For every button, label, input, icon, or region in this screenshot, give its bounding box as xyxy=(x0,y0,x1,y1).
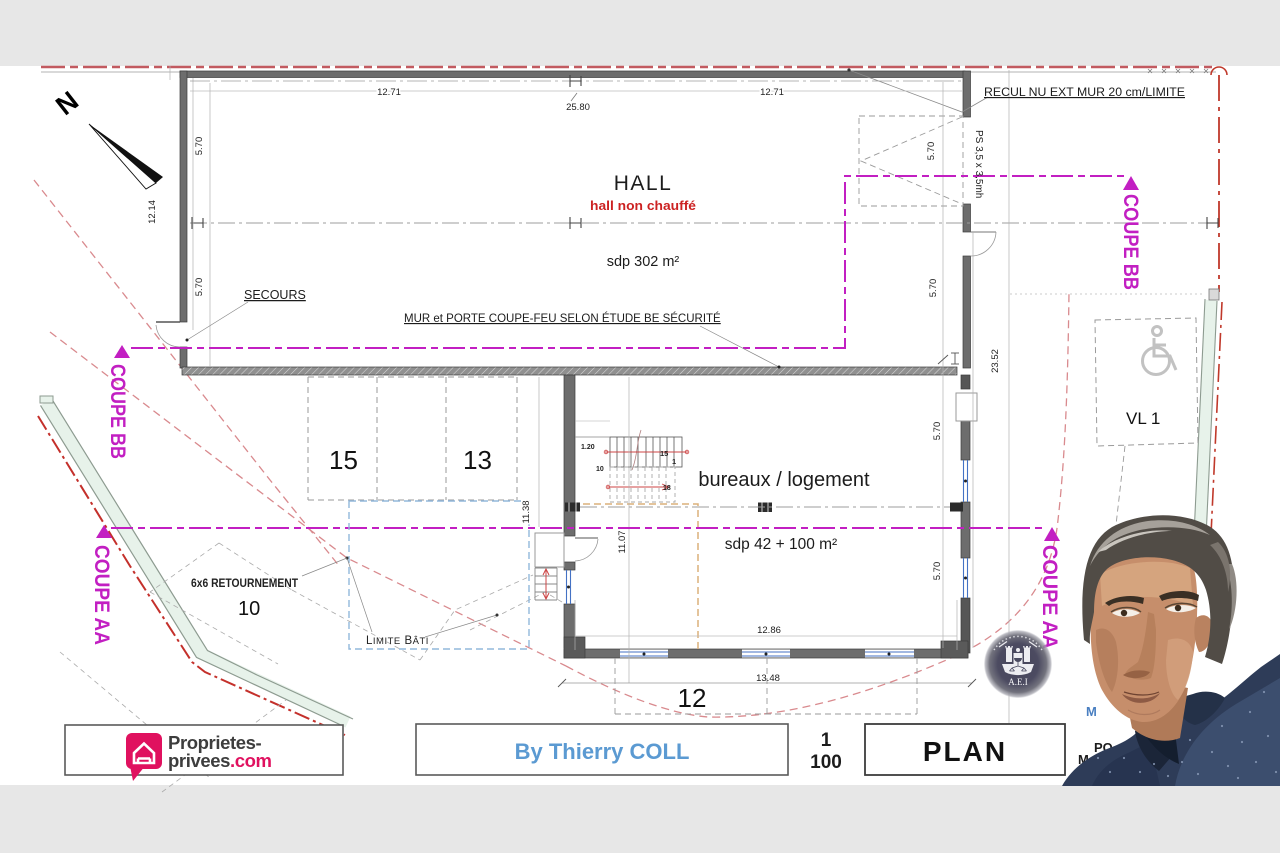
svg-text:1: 1 xyxy=(672,457,676,466)
svg-text:sdp 302 m²: sdp 302 m² xyxy=(607,254,680,270)
svg-text:5.70: 5.70 xyxy=(194,137,205,156)
svg-text:VL 1: VL 1 xyxy=(1126,409,1160,428)
svg-text:5.70: 5.70 xyxy=(928,279,939,298)
svg-text:5.70: 5.70 xyxy=(926,142,937,161)
svg-text:A.E.I: A.E.I xyxy=(1008,677,1028,687)
svg-text:13.48: 13.48 xyxy=(756,673,780,684)
svg-text:SECOURS: SECOURS xyxy=(244,288,306,302)
svg-text:5.70: 5.70 xyxy=(932,422,943,441)
svg-text:5.70: 5.70 xyxy=(194,278,205,297)
svg-text:COUPE AA: COUPE AA xyxy=(1038,545,1061,649)
svg-text:12.71: 12.71 xyxy=(377,87,401,98)
svg-text:12.86: 12.86 xyxy=(757,625,781,636)
svg-text:COUPE AA: COUPE AA xyxy=(90,545,113,645)
svg-text:13: 13 xyxy=(463,445,492,475)
svg-text:15: 15 xyxy=(660,449,668,458)
svg-text:hall non chauffé: hall non chauffé xyxy=(590,198,696,213)
svg-text:25.80: 25.80 xyxy=(566,102,590,113)
svg-text:10: 10 xyxy=(596,466,604,473)
svg-text:sdp 42 + 100 m²: sdp 42 + 100 m² xyxy=(725,536,837,553)
svg-text:18: 18 xyxy=(663,485,671,492)
svg-text:5.70: 5.70 xyxy=(932,562,943,581)
svg-text:PS 3,5 x 3,5mh: PS 3,5 x 3,5mh xyxy=(973,130,984,198)
svg-text:11.07: 11.07 xyxy=(617,530,628,553)
svg-text:12.14: 12.14 xyxy=(147,200,158,224)
svg-text:COUPE BB: COUPE BB xyxy=(106,364,129,459)
svg-text:privees.com: privees.com xyxy=(168,750,272,771)
svg-text:RECUL NU EXT MUR 20 cm/LIMITE: RECUL NU EXT MUR 20 cm/LIMITE xyxy=(984,87,1185,99)
svg-text:MUR et PORTE COUPE-FEU SELON É: MUR et PORTE COUPE-FEU SELON ÉTUDE BE SÉ… xyxy=(404,312,721,325)
svg-text:100: 100 xyxy=(810,752,842,773)
svg-text:HALL: HALL xyxy=(614,172,673,195)
svg-text:1: 1 xyxy=(821,730,832,751)
svg-text:6x6 RETOURNEMENT: 6x6 RETOURNEMENT xyxy=(191,578,298,590)
svg-text:PLAN: PLAN xyxy=(923,736,1007,767)
svg-text:COUPE BB: COUPE BB xyxy=(1119,194,1142,290)
svg-text:M: M xyxy=(1086,704,1097,719)
svg-text:23.52: 23.52 xyxy=(990,349,1001,373)
svg-text:15: 15 xyxy=(329,445,358,475)
svg-text:12: 12 xyxy=(678,683,707,713)
svg-text:bureaux / logement: bureaux / logement xyxy=(698,469,870,491)
svg-text:1.20: 1.20 xyxy=(581,444,595,451)
svg-text:11.38: 11.38 xyxy=(521,500,532,523)
svg-text:12.71: 12.71 xyxy=(760,87,784,98)
svg-text:By Thierry COLL: By Thierry COLL xyxy=(515,739,690,764)
svg-text:10: 10 xyxy=(238,598,260,620)
svg-text:LIMITE BÂTI: LIMITE BÂTI xyxy=(366,635,429,647)
